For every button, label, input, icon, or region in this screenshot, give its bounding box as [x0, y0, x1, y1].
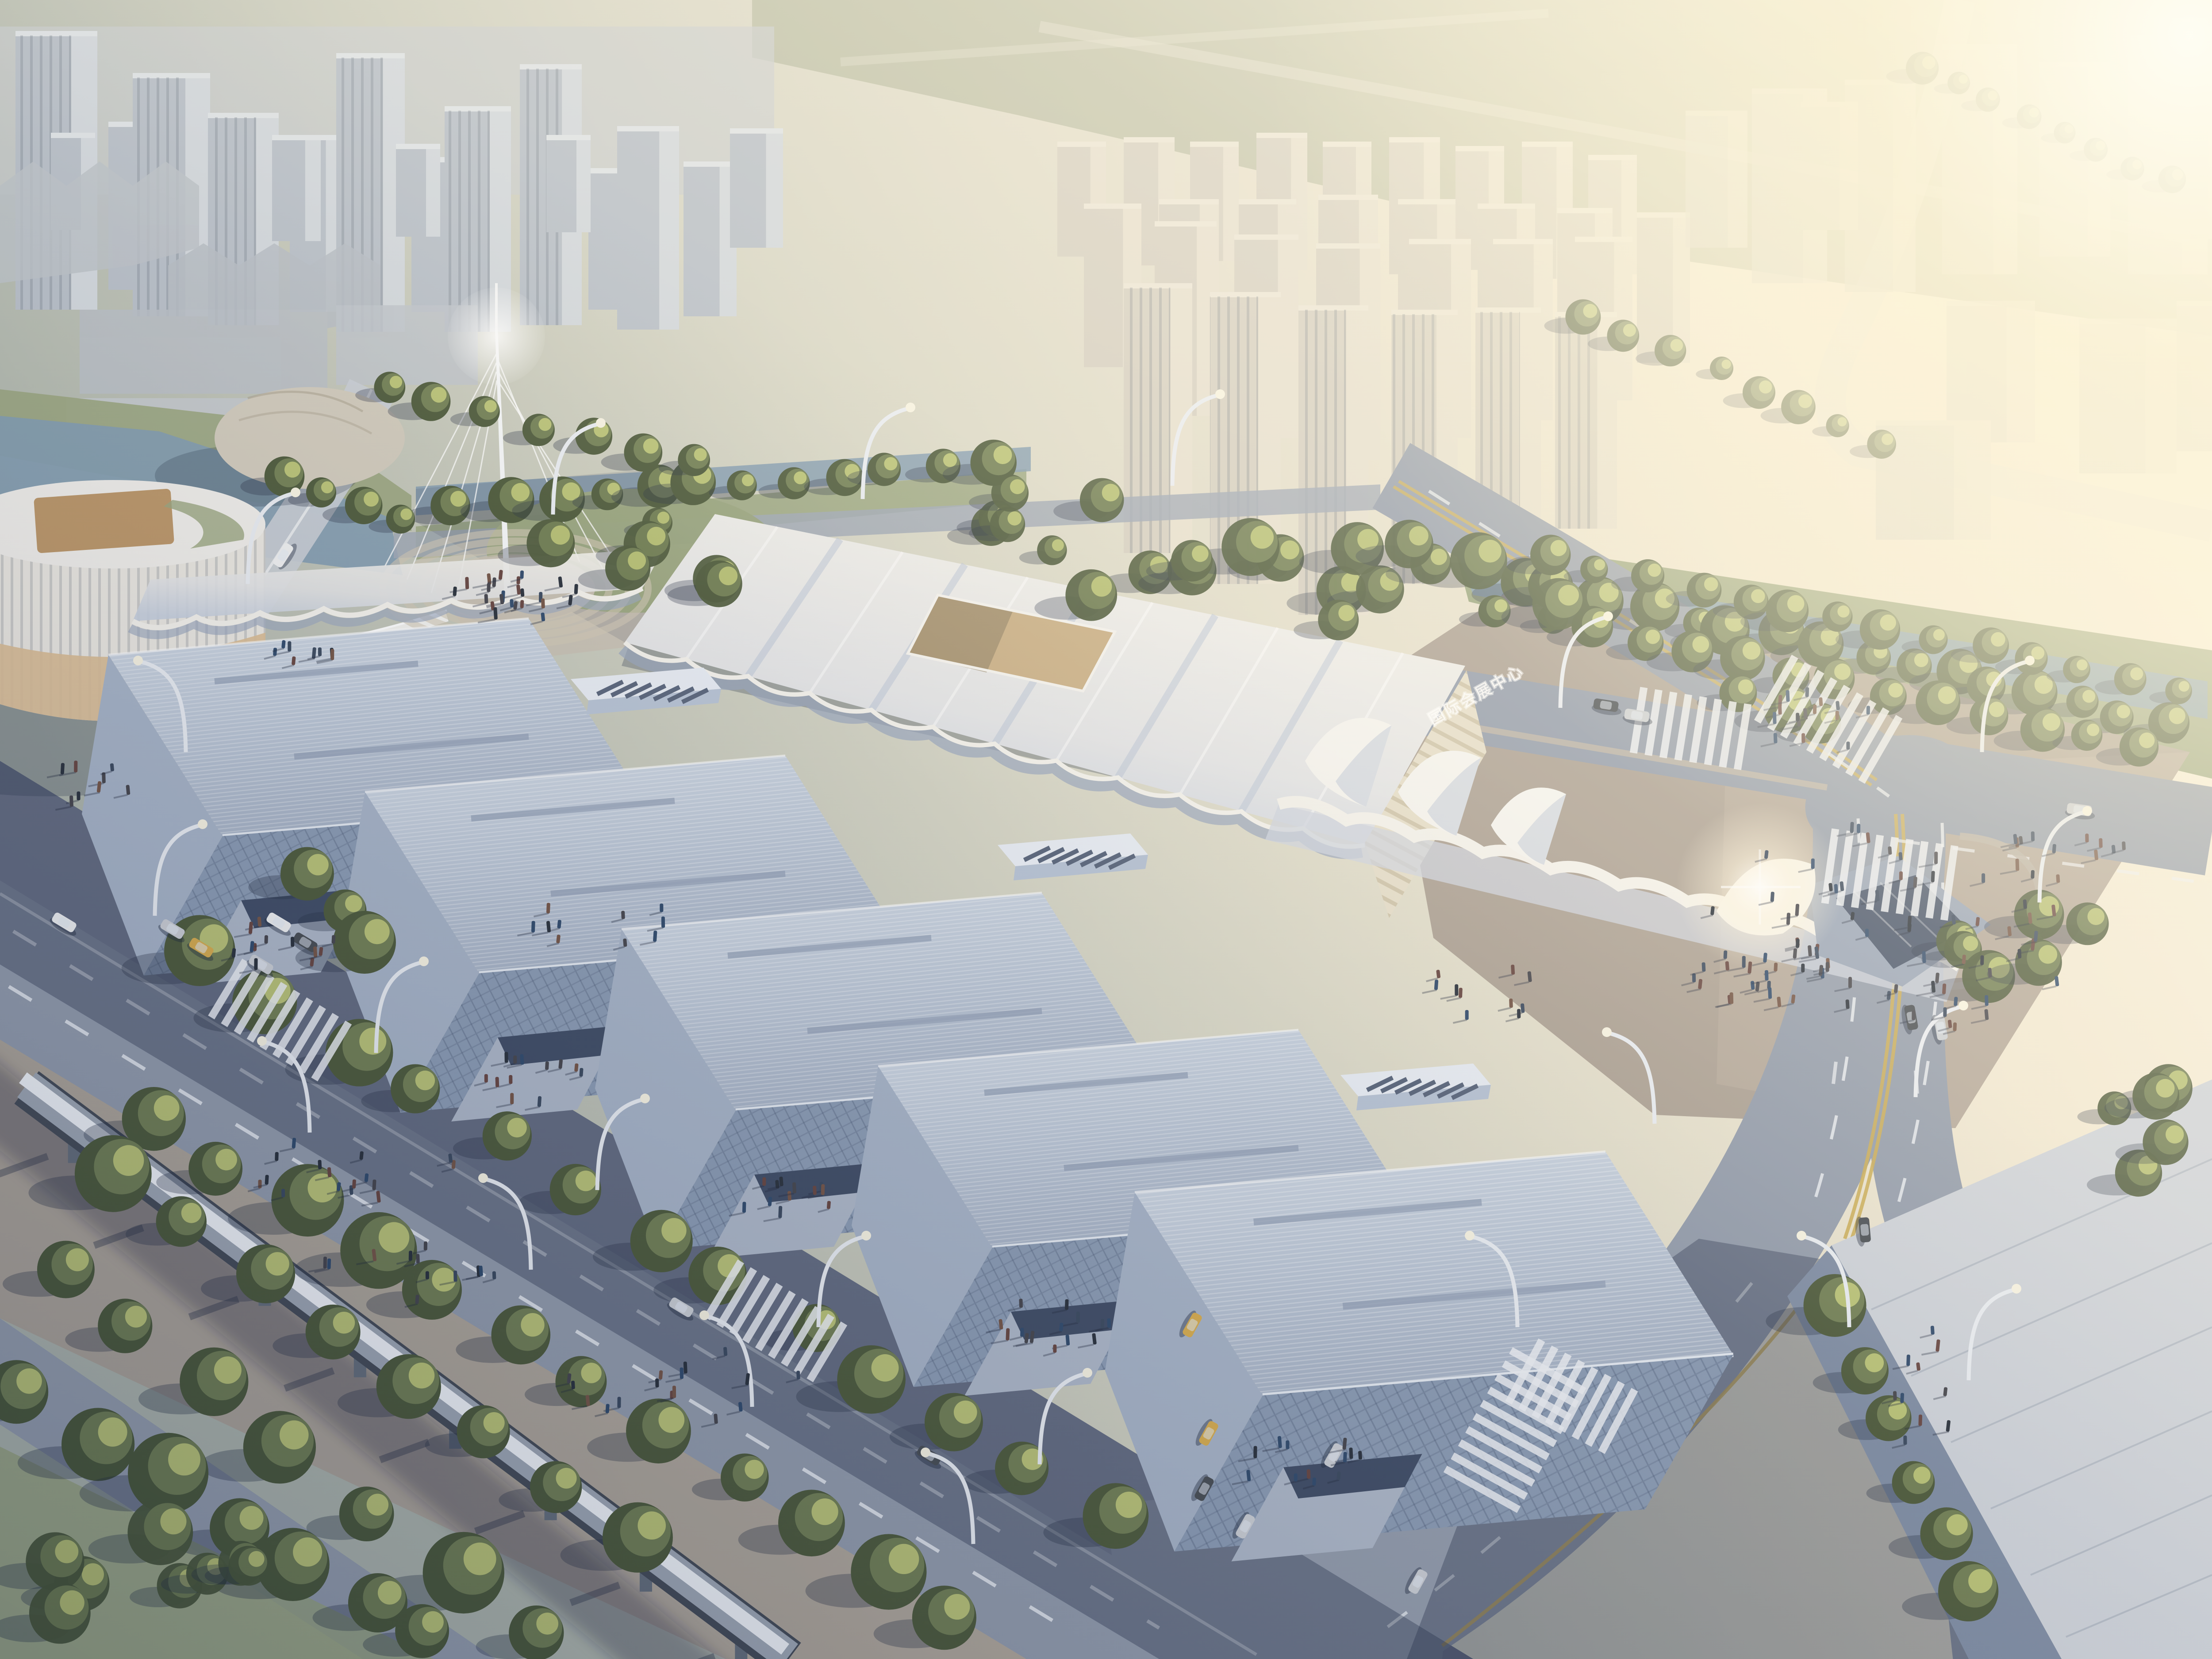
- scene-canvas: 国际会展中心: [0, 0, 2212, 1659]
- sun-glow: [0, 0, 2212, 1659]
- aerial-rendering-exhibition-center: 国际会展中心: [0, 0, 2212, 1659]
